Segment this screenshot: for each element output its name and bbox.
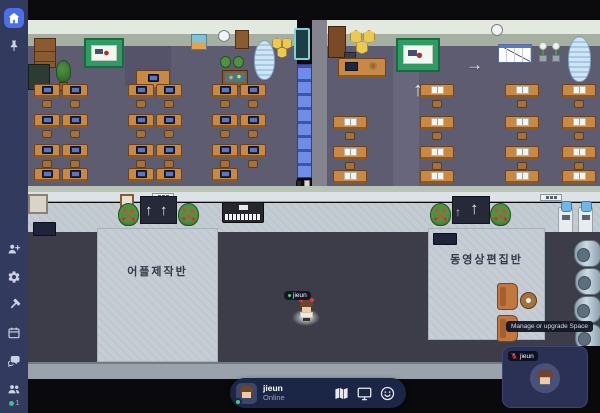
online-count-dot: [9, 401, 14, 406]
chair: [136, 100, 146, 108]
chair: [517, 132, 527, 140]
members-button[interactable]: [4, 379, 24, 399]
wall-clock: [491, 24, 503, 36]
chair: [574, 162, 584, 170]
settings-button[interactable]: [4, 267, 24, 287]
locker-column: [297, 64, 312, 178]
chair: [248, 160, 258, 168]
self-status: Online: [263, 394, 307, 403]
student-desk: [333, 170, 367, 184]
water-cooler: [558, 207, 573, 234]
student-desk: [333, 146, 367, 160]
home-button[interactable]: [4, 8, 24, 28]
flower-bush: [178, 203, 199, 226]
student-desk: [505, 84, 539, 98]
right-room-label: 동영상편집반: [429, 251, 544, 267]
map-bottom-wall: [28, 362, 517, 379]
calendar-button[interactable]: [4, 323, 24, 343]
plant: [56, 60, 71, 82]
bottom-control-bar: jieun Online: [230, 378, 406, 408]
manage-space-tooltip: Manage or upgrade Space: [506, 321, 593, 332]
online-status-dot: [234, 398, 242, 406]
student-desk: [420, 116, 454, 130]
student-desk: [562, 170, 596, 184]
student-desk: [420, 170, 454, 184]
student-desk: [212, 144, 238, 158]
chair: [345, 162, 355, 170]
hall-plaque: [433, 233, 457, 245]
shrub: [233, 56, 244, 68]
left-classroom-wall: [28, 20, 297, 34]
chair: [70, 100, 80, 108]
side-table: [520, 292, 537, 309]
blue-hive-tree: [254, 40, 275, 80]
student-desk: [34, 84, 60, 98]
white-flower: [551, 42, 561, 62]
chair: [220, 130, 230, 138]
mat-roll: [575, 268, 600, 295]
chair: [574, 132, 584, 140]
chair: [164, 100, 174, 108]
student-desk: [34, 114, 60, 128]
monitor-icon: [356, 385, 373, 402]
wall-clock: [218, 30, 230, 42]
members-count-value: 1: [16, 400, 20, 407]
student-desk: [212, 168, 238, 182]
wall-board: [235, 30, 249, 49]
chair: [432, 132, 442, 140]
calendar-board: [498, 44, 532, 63]
chair: [42, 160, 52, 168]
student-desk: [505, 146, 539, 160]
student-desk: [212, 84, 238, 98]
floor-arrow-right: →: [466, 56, 483, 73]
members-count: 1: [9, 400, 20, 407]
self-video-tile[interactable]: jieun: [502, 346, 588, 408]
bulletin-board: [28, 194, 48, 214]
flower-bush: [490, 203, 511, 226]
player-name: jieun: [293, 292, 307, 299]
mic-off-icon: [510, 352, 518, 360]
student-desk: [156, 114, 182, 128]
app-window: ↑ → ↑ ↑: [0, 0, 600, 413]
add-member-icon: [7, 242, 21, 256]
gear-icon: [7, 270, 21, 284]
student-desk: [62, 114, 88, 128]
chair: [42, 100, 52, 108]
self-identity[interactable]: jieun Online: [263, 384, 307, 402]
student-desk: [240, 144, 266, 158]
left-sidebar: 1: [0, 0, 28, 413]
flower-bush: [118, 203, 139, 226]
chair: [432, 100, 442, 108]
chalkboard: [84, 38, 124, 68]
video-tile-label: jieun: [508, 351, 538, 361]
white-flower: [538, 42, 548, 62]
student-desk: [128, 84, 154, 98]
student-desk: [420, 84, 454, 98]
student-desk: [128, 144, 154, 158]
teal-door: [294, 28, 310, 60]
left-room-label: 어플제작반: [98, 263, 217, 279]
chair: [164, 130, 174, 138]
water-cooler: [578, 207, 593, 234]
player-avatar: [300, 299, 313, 321]
chair: [248, 100, 258, 108]
student-desk: [156, 84, 182, 98]
student-desk: [505, 116, 539, 130]
build-button[interactable]: [4, 295, 24, 315]
flower-bush: [430, 203, 451, 226]
emote-button[interactable]: [379, 385, 396, 402]
student-desk: [240, 84, 266, 98]
student-desk: [62, 144, 88, 158]
chalkboard: [396, 38, 440, 72]
student-desk: [128, 114, 154, 128]
student-desk: [562, 84, 596, 98]
pin-icon: [7, 39, 21, 53]
student-desk: [562, 116, 596, 130]
add-member-button[interactable]: [4, 239, 24, 259]
student-desk: [34, 144, 60, 158]
student-desk: [505, 170, 539, 184]
shrub: [220, 56, 231, 68]
student-desk: [212, 114, 238, 128]
chair: [220, 100, 230, 108]
student-desk: [128, 168, 154, 182]
player-online-dot: [288, 294, 291, 297]
hammer-icon: [7, 298, 21, 312]
chair: [248, 130, 258, 138]
student-desk: [333, 116, 367, 130]
student-desk: [562, 146, 596, 160]
chair: [517, 100, 527, 108]
chair: [220, 160, 230, 168]
student-desk: [62, 168, 88, 182]
video-tile-avatar: [530, 363, 560, 393]
chair: [345, 132, 355, 140]
chair: [136, 130, 146, 138]
mat-roll: [574, 296, 600, 323]
mat-roll: [574, 240, 600, 267]
pin-button[interactable]: [4, 36, 24, 56]
video-tile-name: jieun: [520, 353, 534, 360]
chair: [136, 160, 146, 168]
teacher-desk: [338, 58, 386, 78]
home-icon: [7, 11, 21, 25]
chair: [517, 162, 527, 170]
members-icon: [7, 382, 21, 396]
student-desk: [34, 168, 60, 182]
chat-button[interactable]: [4, 351, 24, 371]
student-desk: [420, 146, 454, 160]
chair: [70, 160, 80, 168]
chat-icon: [7, 354, 21, 368]
corridor-sign-band: [28, 192, 600, 202]
room-sign: [540, 194, 562, 201]
student-desk: [240, 114, 266, 128]
hall-plaque: [33, 222, 56, 236]
piano: [222, 202, 264, 223]
map-icon: [333, 385, 350, 402]
chair: [574, 100, 584, 108]
chair: [432, 162, 442, 170]
chair: [70, 130, 80, 138]
stairwell-right: ↑ ↑: [452, 196, 490, 224]
divider-wall: [312, 20, 327, 192]
stairwell-left: ↑ ↑: [140, 196, 177, 224]
chair: [42, 130, 52, 138]
self-avatar-thumbnail[interactable]: [236, 383, 257, 404]
calendar-icon: [7, 326, 21, 340]
wall-poster: [191, 34, 207, 50]
player-name-tag: jieun: [284, 291, 311, 300]
smiley-icon: [379, 385, 396, 402]
armchair: [497, 283, 518, 310]
student-desk: [62, 84, 88, 98]
blue-hive-tree: [568, 36, 591, 82]
screen-share-button[interactable]: [356, 385, 373, 402]
student-desk: [156, 144, 182, 158]
chair: [164, 160, 174, 168]
left-activity-room: 어플제작반: [97, 228, 218, 362]
minimap-button[interactable]: [333, 385, 350, 402]
student-desk: [156, 168, 182, 182]
